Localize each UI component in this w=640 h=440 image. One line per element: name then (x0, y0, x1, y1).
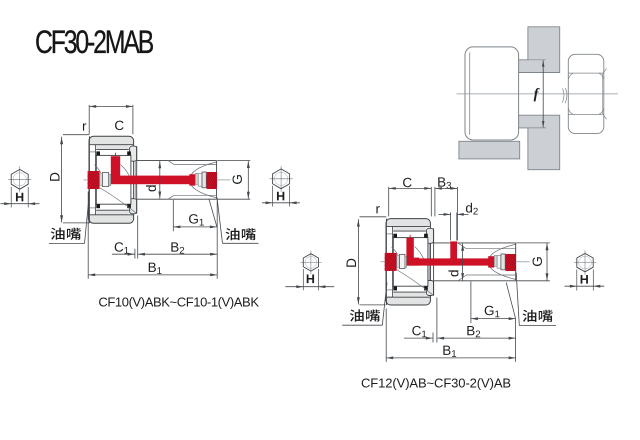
svg-text:d: d (447, 269, 462, 277)
svg-text:H: H (306, 272, 315, 286)
svg-text:CF10(V)ABK~CF10-1(V)ABK: CF10(V)ABK~CF10-1(V)ABK (98, 295, 259, 310)
svg-text:D: D (344, 258, 359, 268)
svg-text:C: C (114, 118, 124, 133)
svg-text:C: C (402, 175, 412, 190)
svg-text:CF12(V)AB~CF30-2(V)AB: CF12(V)AB~CF30-2(V)AB (361, 375, 511, 390)
svg-text:H: H (15, 190, 24, 204)
svg-text:CF30-2MAB: CF30-2MAB (35, 25, 154, 61)
svg-text:G: G (530, 256, 545, 267)
svg-text:D: D (47, 172, 62, 182)
svg-text:r: r (82, 119, 87, 134)
svg-text:G: G (230, 174, 245, 185)
svg-text:H: H (580, 273, 589, 287)
svg-text:r: r (376, 201, 381, 216)
svg-text:H: H (276, 189, 285, 203)
svg-text:d: d (144, 184, 159, 192)
